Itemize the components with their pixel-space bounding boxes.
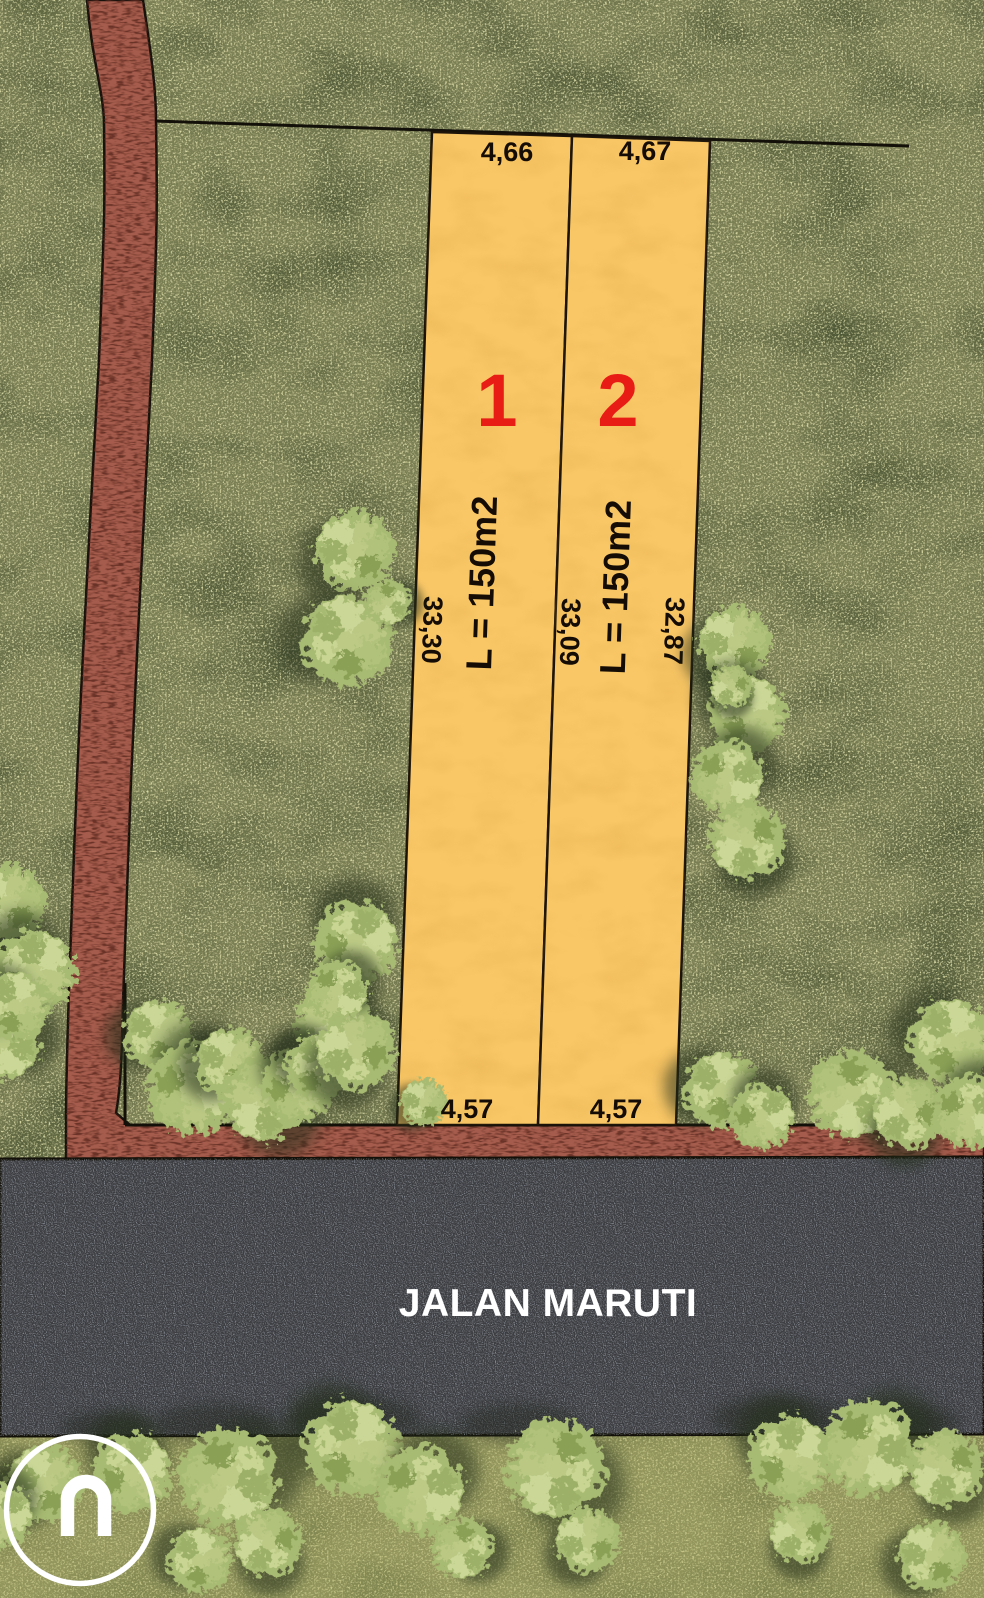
svg-text:4,57: 4,57 <box>441 1094 494 1124</box>
svg-text:2: 2 <box>597 359 638 442</box>
svg-text:L = 150m2: L = 150m2 <box>458 495 505 671</box>
svg-text:4,57: 4,57 <box>590 1094 643 1124</box>
svg-text:33,09: 33,09 <box>554 598 586 667</box>
svg-text:4,66: 4,66 <box>481 137 534 167</box>
svg-text:JALAN MARUTI: JALAN MARUTI <box>399 1282 697 1325</box>
svg-text:L = 150m2: L = 150m2 <box>592 499 639 675</box>
svg-text:4,67: 4,67 <box>619 136 672 166</box>
svg-text:1: 1 <box>476 359 517 442</box>
